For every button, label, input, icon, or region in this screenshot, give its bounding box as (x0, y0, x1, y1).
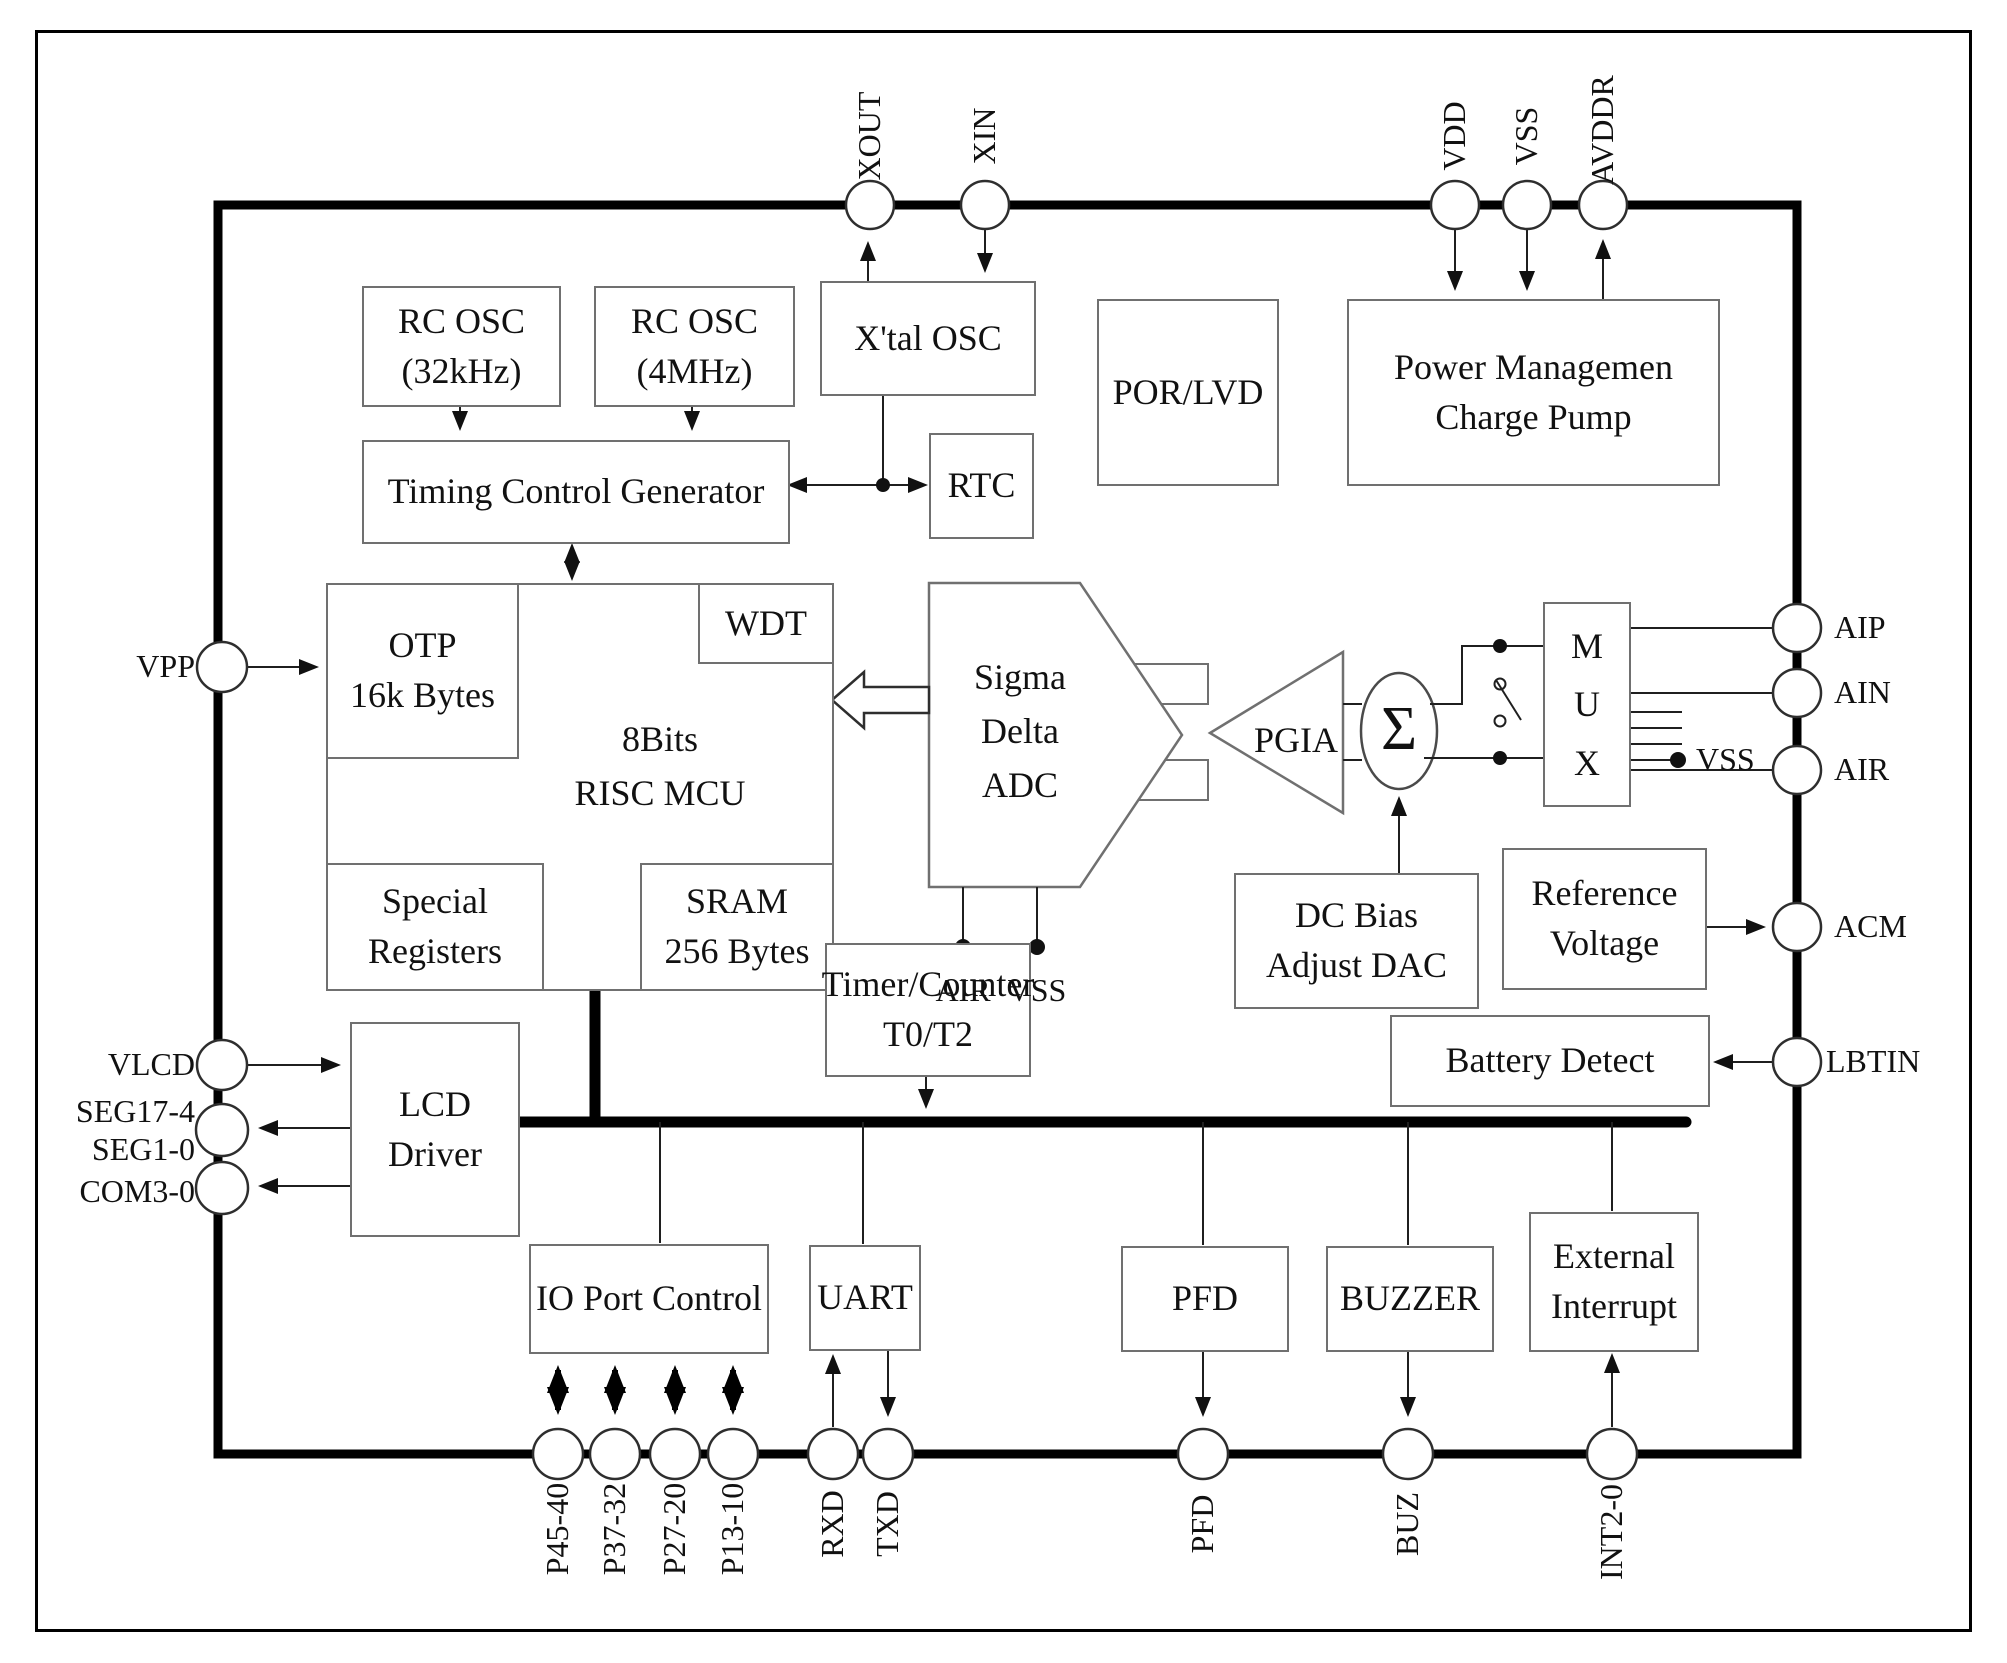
mcu-core-label: 8Bits RISC MCU (490, 712, 830, 820)
pin-label-air: AIR (1834, 751, 2007, 788)
pin-com (196, 1162, 248, 1214)
summer-symbol: Σ (1369, 694, 1429, 765)
block-timer-counter: Timer/Counter T0/T2 (825, 943, 1031, 1077)
pgia-label: PGIA (1246, 713, 1346, 767)
adc-to-mcu-open-arrow (832, 672, 929, 728)
pin-label-aip: AIP (1834, 609, 2007, 646)
block-label: Power Managemen (1394, 343, 1673, 393)
block-label: ADC (982, 758, 1058, 812)
analog-input-switch (1495, 679, 1522, 727)
block-buzzer: BUZZER (1326, 1246, 1494, 1352)
net-label-mux-vss: VSS (1696, 741, 1755, 778)
block-label: RC OSC (631, 297, 758, 347)
mcu-block-diagram: RC OSC (32kHz) RC OSC (4MHz) X'tal OSC P… (0, 0, 2007, 1663)
block-reference-voltage: Reference Voltage (1502, 848, 1707, 990)
pin-label-txd: TXD (869, 1439, 907, 1609)
block-label: Reference (1532, 869, 1678, 919)
block-label: (4MHz) (637, 347, 753, 397)
block-label: SRAM (686, 877, 788, 927)
pin-acm (1773, 903, 1821, 951)
block-label: U (1574, 675, 1600, 733)
block-label: Timing Control Generator (388, 467, 765, 517)
block-pfd: PFD (1121, 1246, 1289, 1352)
block-label: RTC (948, 461, 1016, 511)
block-label: Sigma (974, 650, 1066, 704)
pin-label-com3-0: COM3-0 (25, 1173, 195, 1210)
block-label: UART (817, 1273, 913, 1323)
block-wdt: WDT (698, 583, 834, 664)
block-io-port-control: IO Port Control (529, 1244, 769, 1354)
block-dc-bias-dac: DC Bias Adjust DAC (1234, 873, 1479, 1009)
block-battery-detect: Battery Detect (1390, 1015, 1710, 1107)
pin-ain (1773, 669, 1821, 717)
net-label-adc-vss: VSS (977, 972, 1097, 1009)
pin-label-seg1-0: SEG1-0 (25, 1131, 195, 1168)
pin-label-p37-32: P37-32 (596, 1444, 634, 1614)
block-power-management: Power Managemen Charge Pump (1347, 299, 1720, 486)
sigma-delta-adc-label: Sigma Delta ADC (925, 650, 1115, 812)
block-label: WDT (725, 599, 807, 649)
pin-label-p13-10: P13-10 (714, 1444, 752, 1614)
pin-vlcd (197, 1040, 247, 1090)
block-label: RC OSC (398, 297, 525, 347)
block-label: Voltage (1550, 919, 1659, 969)
analog-frontend-shapes (832, 583, 1437, 887)
block-label: BUZZER (1340, 1274, 1480, 1324)
block-sram: SRAM 256 Bytes (640, 863, 834, 991)
pin-label-int2-0: INT2-0 (1593, 1447, 1631, 1617)
pin-label-vss: VSS (1508, 51, 1546, 221)
block-label: M (1571, 617, 1603, 675)
block-label: DC Bias (1295, 891, 1418, 941)
pin-lbtin (1773, 1038, 1821, 1086)
block-label: 16k Bytes (350, 671, 495, 721)
block-label: PGIA (1254, 713, 1338, 767)
pin-label-xin: XIN (966, 51, 1004, 221)
diagram-wiring-layer (0, 0, 2007, 1663)
block-label: T0/T2 (883, 1010, 973, 1060)
block-label: Adjust DAC (1266, 941, 1447, 991)
block-label: 256 Bytes (664, 927, 809, 977)
block-lcd-driver: LCD Driver (350, 1022, 520, 1237)
block-label: Delta (981, 704, 1059, 758)
block-label: Charge Pump (1435, 393, 1631, 443)
pin-vpp (197, 642, 247, 692)
pin-label-acm: ACM (1834, 908, 2007, 945)
block-xtal-osc: X'tal OSC (820, 281, 1036, 396)
block-label: 8Bits (622, 712, 698, 766)
pin-label-p27-20: P27-20 (656, 1444, 694, 1614)
block-rtc: RTC (929, 433, 1034, 539)
block-label: External (1553, 1232, 1675, 1282)
block-label: Battery Detect (1446, 1036, 1655, 1086)
block-timing-control: Timing Control Generator (362, 440, 790, 544)
pin-air (1773, 746, 1821, 794)
pin-label-ain: AIN (1834, 674, 2007, 711)
io-port-bus-arrows (558, 1370, 733, 1410)
block-label: LCD (399, 1080, 471, 1130)
block-por-lvd: POR/LVD (1097, 299, 1279, 486)
block-uart: UART (809, 1245, 921, 1351)
pin-label-vlcd: VLCD (25, 1046, 195, 1083)
block-mux: M U X (1543, 602, 1631, 807)
block-label: OTP (388, 621, 456, 671)
block-special-registers: Special Registers (326, 863, 544, 991)
block-rc-osc-32k: RC OSC (32kHz) (362, 286, 561, 407)
pin-label-seg17-4: SEG17-4 (25, 1093, 195, 1130)
block-label: POR/LVD (1113, 368, 1264, 418)
pin-label-vdd: VDD (1436, 51, 1474, 221)
block-label: X'tal OSC (854, 314, 1002, 364)
pin-label-avddr: AVDDR (1584, 45, 1622, 215)
block-label: IO Port Control (536, 1274, 762, 1324)
block-label: Driver (388, 1130, 482, 1180)
block-label: Registers (368, 927, 502, 977)
block-label: RISC MCU (574, 766, 745, 820)
block-label: Special (382, 877, 488, 927)
pin-seg (196, 1104, 248, 1156)
block-label: (32kHz) (402, 347, 522, 397)
block-label: X (1574, 734, 1600, 792)
pin-label-vpp: VPP (25, 648, 195, 685)
pin-label-pfd: PFD (1184, 1439, 1222, 1609)
block-external-interrupt: External Interrupt (1529, 1212, 1699, 1352)
block-label: PFD (1172, 1274, 1238, 1324)
pin-label-rxd: RXD (814, 1439, 852, 1609)
pin-label-buz: BUZ (1389, 1439, 1427, 1609)
pin-label-p45-40: P45-40 (539, 1444, 577, 1614)
block-rc-osc-4m: RC OSC (4MHz) (594, 286, 795, 407)
pin-aip (1773, 604, 1821, 652)
pin-label-xout: XOUT (851, 51, 889, 221)
block-label: Interrupt (1551, 1282, 1677, 1332)
pin-label-lbtin: LBTIN (1826, 1043, 2007, 1080)
